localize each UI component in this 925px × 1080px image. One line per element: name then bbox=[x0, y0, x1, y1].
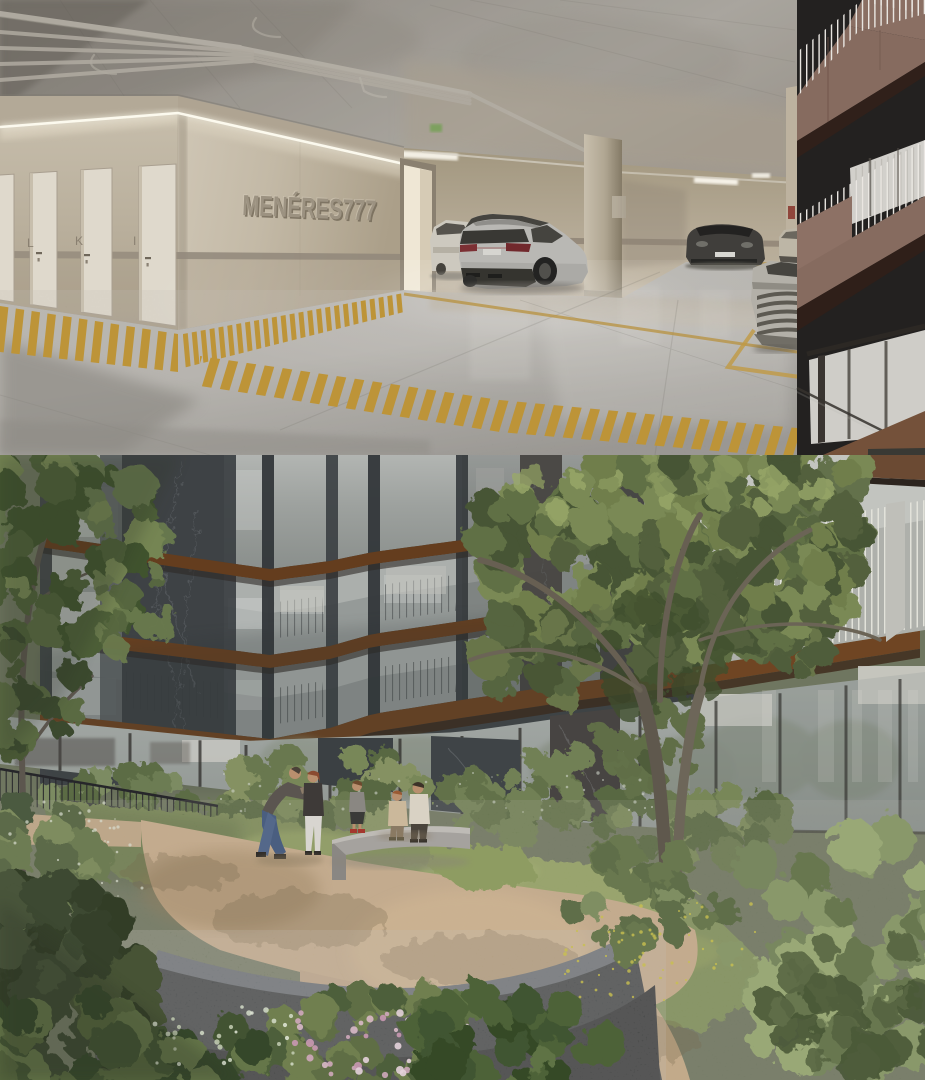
svg-text:K: K bbox=[75, 234, 83, 248]
svg-text:MENÉRES777: MENÉRES777 bbox=[242, 188, 377, 228]
svg-text:L: L bbox=[27, 236, 34, 250]
svg-text:I: I bbox=[133, 234, 136, 248]
